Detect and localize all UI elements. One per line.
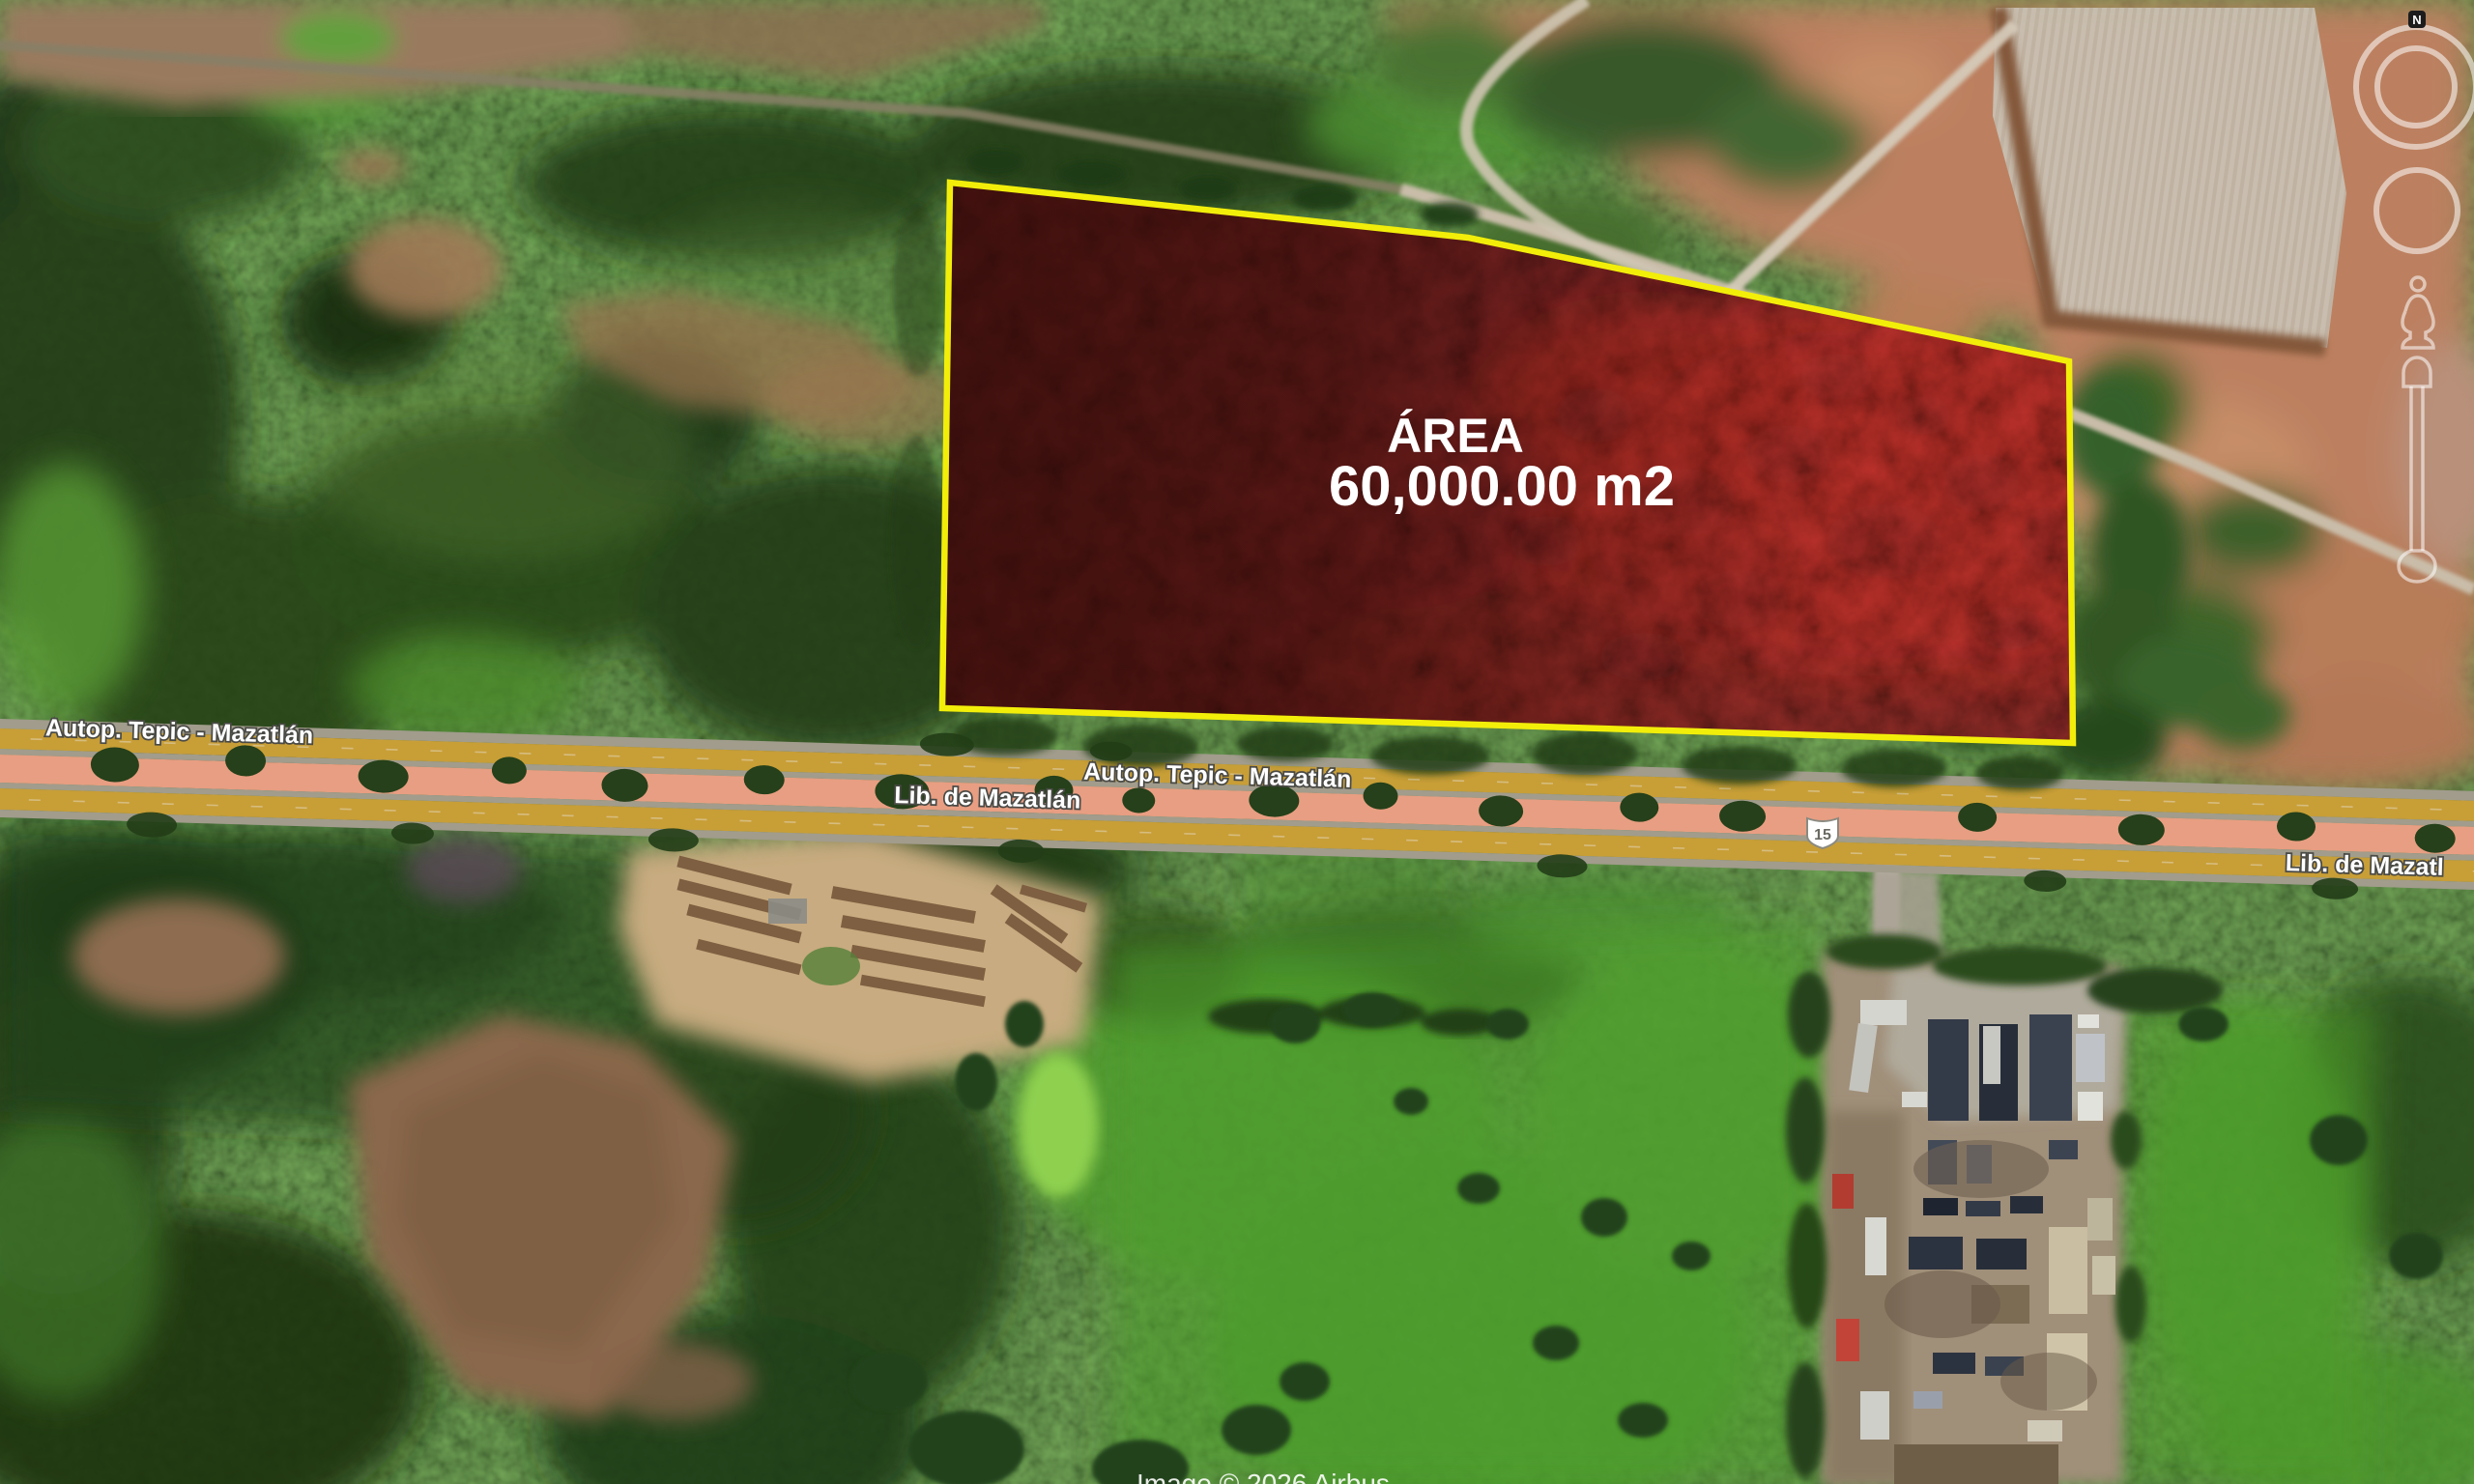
svg-text:N: N bbox=[2412, 13, 2421, 27]
svg-text:15: 15 bbox=[1814, 827, 1831, 843]
svg-text:Image © 2026 Airbus: Image © 2026 Airbus bbox=[1136, 1469, 1390, 1484]
svg-text:Lib. de Mazatl: Lib. de Mazatl bbox=[2285, 849, 2444, 881]
svg-text:Lib. de Mazatlán: Lib. de Mazatlán bbox=[894, 782, 1081, 814]
svg-text:60,000.00 m2: 60,000.00 m2 bbox=[1329, 455, 1675, 518]
